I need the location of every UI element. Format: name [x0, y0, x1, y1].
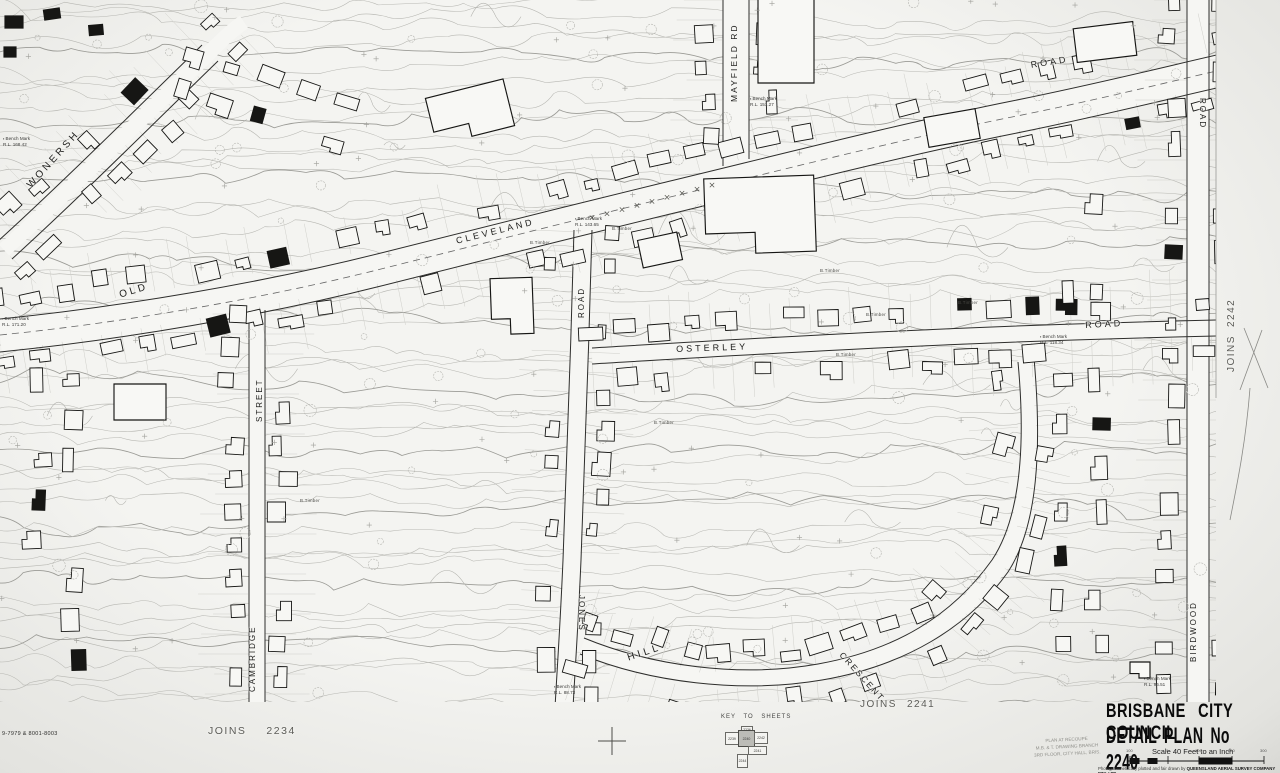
- street-label-cambridge: CAMBRIDGE: [248, 626, 257, 692]
- scale-tick: 300: [1260, 748, 1267, 753]
- joins-word: JOINS: [860, 699, 897, 710]
- credit-line: Photogrammetrically plotted and fair dra…: [1098, 766, 1280, 773]
- joins-word: JOINS: [1226, 335, 1237, 372]
- key-sheet-center: 2240: [738, 730, 755, 747]
- street-label-mayfield: MAYFIELD RD: [729, 23, 739, 102]
- street-label-osterley-road: ROAD: [1085, 318, 1123, 330]
- bench-mark-note: Bench Mark R.L. 96.51: [1144, 676, 1171, 687]
- key-sheet-right: 2242: [754, 732, 768, 744]
- bench-mark-note: Bench Mark R.L. 88.73: [554, 684, 581, 695]
- bench-mark-note: Bench Mark R.L. 168.42: [3, 136, 30, 147]
- bench-mark-note: Bench Mark R.L. 143.65: [575, 216, 602, 227]
- street-label-birdwood: BIRDWOOD: [1189, 601, 1198, 662]
- registration-cross-icon: [598, 727, 626, 755]
- street-label-birdwood-road: ROAD: [1198, 98, 1207, 129]
- street-label-jones-road: ROAD: [577, 287, 586, 318]
- key-sheet-left: 2239: [725, 732, 739, 745]
- b-timber-note: B.Timber: [866, 312, 886, 317]
- street-label-cambridge-street: STREET: [255, 378, 264, 422]
- key-to-sheets-title: KEY TO SHEETS: [721, 714, 791, 720]
- scale-bar: [1125, 752, 1270, 766]
- scale-tick: 200: [1228, 748, 1235, 753]
- key-sheet-bottom-right: 2241: [748, 746, 767, 755]
- b-timber-note: B.Timber: [836, 352, 856, 357]
- key-sheet-bottom: 2244: [737, 754, 748, 768]
- detail-plan-sheet: WONERSH MAYFIELD RD OLD CLEVELAND ROAD R…: [0, 0, 1280, 773]
- b-timber-note: B.Timber: [612, 226, 632, 231]
- scale-tick: 100: [1126, 748, 1133, 753]
- b-timber-note: B.Timber: [820, 268, 840, 273]
- joins-number: 2241: [907, 699, 935, 710]
- joins-word: JOINS: [208, 725, 246, 737]
- joins-label-bottom-center: JOINS2241: [860, 699, 935, 710]
- joins-label-right: JOINS2242: [1226, 299, 1237, 372]
- b-timber-note: B.Timber: [300, 498, 320, 503]
- sheet-code: 9-7979 & 8001-8003: [2, 731, 58, 737]
- b-timber-note: B.Timber: [958, 300, 978, 305]
- scale-tick: 100: [1195, 748, 1202, 753]
- street-label-jones: JONES: [577, 595, 586, 632]
- bench-mark-note: Bench Mark R.L. 151.27: [750, 96, 777, 107]
- scale-tick: 0: [1166, 748, 1168, 753]
- b-timber-note: B.Timber: [530, 240, 550, 245]
- bench-mark-note: Bench Mark R.L. 118.34: [1040, 334, 1067, 345]
- bench-mark-note: Bench Mark R.L. 171.20: [2, 316, 29, 327]
- joins-label-bottom-left: JOINS2234: [208, 725, 296, 737]
- b-timber-note: B.Timber: [654, 420, 674, 425]
- joins-number: 2242: [1226, 299, 1237, 327]
- joins-number: 2234: [266, 725, 295, 737]
